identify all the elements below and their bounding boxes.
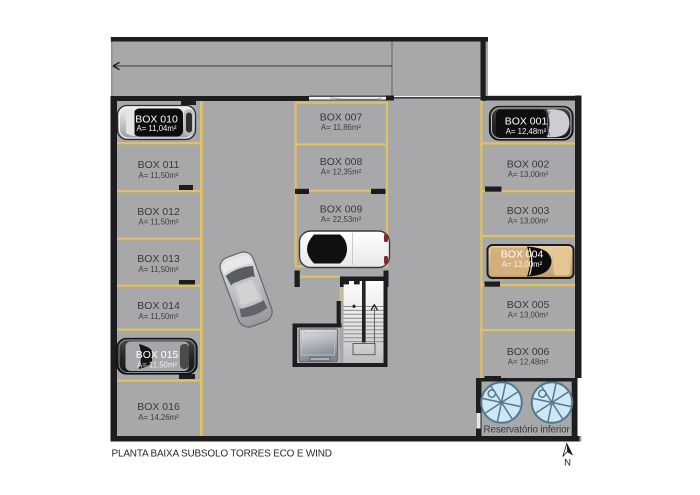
svg-text:BOX 005: BOX 005: [507, 299, 550, 311]
svg-text:N: N: [564, 458, 571, 469]
svg-text:PLANTA BAIXA SUBSOLO TORRES EC: PLANTA BAIXA SUBSOLO TORRES ECO E WIND: [112, 448, 332, 459]
svg-text:A= 13,00m²: A= 13,00m²: [508, 311, 549, 320]
svg-text:A= 13,00m²: A= 13,00m²: [508, 170, 549, 179]
svg-text:Reservatório inferior: Reservatório inferior: [484, 424, 571, 435]
svg-text:A= 11,50m²: A= 11,50m²: [139, 218, 179, 227]
svg-text:BOX 001: BOX 001: [505, 116, 548, 128]
svg-text:BOX 006: BOX 006: [507, 346, 550, 358]
svg-text:A= 12,48m²: A= 12,48m²: [506, 127, 547, 136]
svg-text:BOX 004: BOX 004: [501, 249, 544, 261]
svg-text:A= 11,50m²: A= 11,50m²: [139, 265, 179, 274]
svg-text:A= 11,50m²: A= 11,50m²: [139, 171, 179, 180]
svg-text:A= 12,48m²: A= 12,48m²: [508, 358, 549, 367]
svg-text:BOX 007: BOX 007: [320, 112, 363, 124]
svg-text:A= 11,50m²: A= 11,50m²: [137, 361, 177, 370]
svg-text:BOX 015: BOX 015: [136, 349, 179, 361]
svg-text:A= 11,04m²: A= 11,04m²: [137, 124, 177, 133]
svg-text:BOX 012: BOX 012: [137, 206, 180, 218]
svg-text:BOX 003: BOX 003: [507, 205, 550, 217]
svg-text:BOX 011: BOX 011: [138, 159, 180, 171]
svg-text:BOX 002: BOX 002: [507, 159, 550, 171]
svg-text:BOX 016: BOX 016: [137, 401, 180, 413]
svg-text:A= 14,26m²: A= 14,26m²: [138, 413, 179, 422]
svg-text:BOX 009: BOX 009: [320, 204, 363, 216]
svg-text:A= 11,50m²: A= 11,50m²: [139, 312, 179, 321]
svg-text:BOX 014: BOX 014: [137, 300, 180, 312]
svg-text:A= 11,86m²: A= 11,86m²: [321, 123, 361, 132]
svg-text:A= 12,35m²: A= 12,35m²: [321, 168, 362, 177]
svg-text:BOX 008: BOX 008: [320, 156, 363, 168]
svg-text:BOX 013: BOX 013: [137, 253, 180, 265]
svg-text:A= 13,00m²: A= 13,00m²: [508, 217, 549, 226]
svg-text:A= 22,53m²: A= 22,53m²: [321, 215, 362, 224]
svg-text:A= 13,00m²: A= 13,00m²: [502, 260, 543, 269]
